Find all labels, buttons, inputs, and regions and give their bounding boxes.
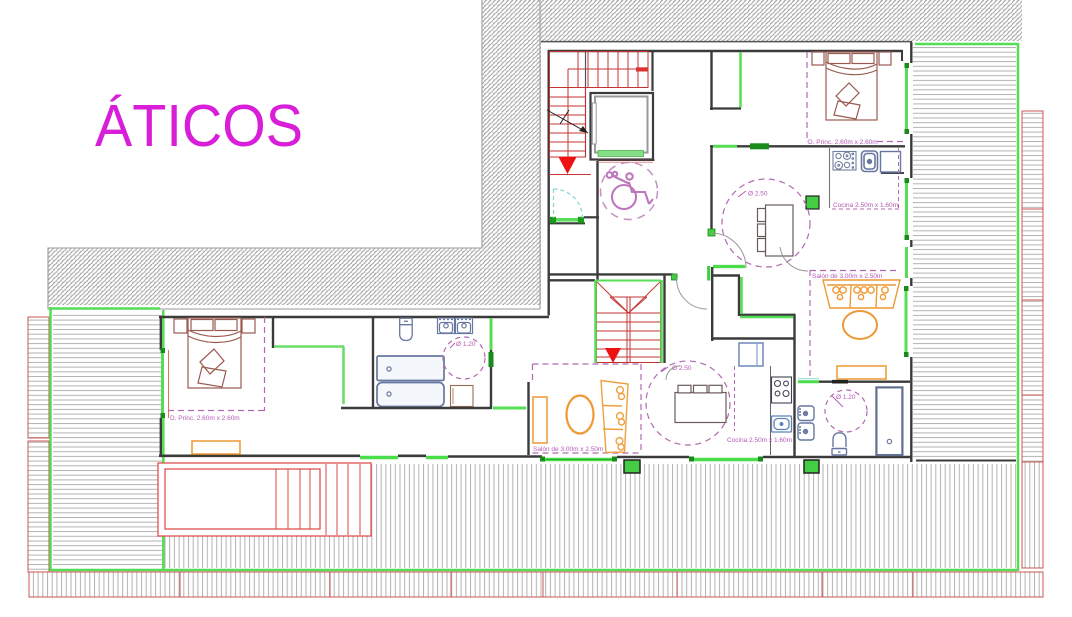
svg-text:D. Princ. 2.60m x 2.60m: D. Princ. 2.60m x 2.60m (808, 139, 878, 146)
svg-text:Salón de 3.00m x 2.50m: Salón de 3.00m x 2.50m (533, 446, 603, 453)
svg-text:Cocina 2.50m x 1.60m: Cocina 2.50m x 1.60m (833, 202, 898, 209)
svg-text:ÁTICOS: ÁTICOS (95, 93, 303, 159)
svg-text:Ø 2.50: Ø 2.50 (672, 365, 692, 372)
svg-text:Cocina 2.50m x 1.60m: Cocina 2.50m x 1.60m (727, 437, 792, 444)
svg-text:Ø 1.20: Ø 1.20 (456, 341, 476, 348)
svg-text:Ø 2.50: Ø 2.50 (748, 191, 768, 198)
svg-text:D. Princ. 2.60m x 2.60m: D. Princ. 2.60m x 2.60m (170, 415, 240, 422)
svg-text:Salón de 3.00m x 2.50m: Salón de 3.00m x 2.50m (812, 273, 882, 280)
svg-text:Ø 1.20: Ø 1.20 (836, 394, 856, 401)
